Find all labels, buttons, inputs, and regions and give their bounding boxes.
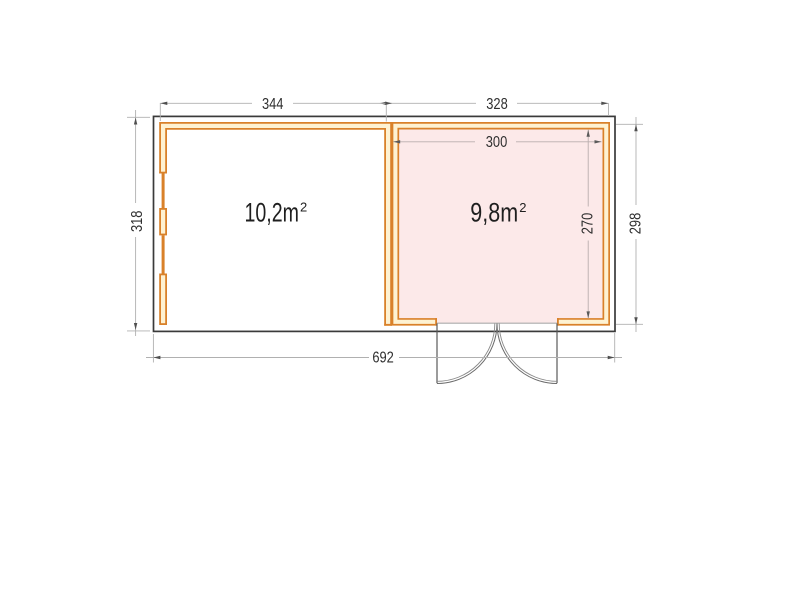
svg-text:328: 328 <box>486 96 508 113</box>
svg-text:298: 298 <box>628 213 645 235</box>
svg-text:692: 692 <box>372 350 394 367</box>
svg-text:318: 318 <box>129 211 146 233</box>
svg-text:2: 2 <box>300 200 307 215</box>
svg-text:10,2m: 10,2m <box>245 198 300 228</box>
svg-text:270: 270 <box>580 212 597 234</box>
svg-text:9,8m: 9,8m <box>470 198 518 228</box>
svg-text:2: 2 <box>519 200 526 215</box>
svg-text:300: 300 <box>486 134 508 151</box>
svg-text:344: 344 <box>262 96 284 113</box>
